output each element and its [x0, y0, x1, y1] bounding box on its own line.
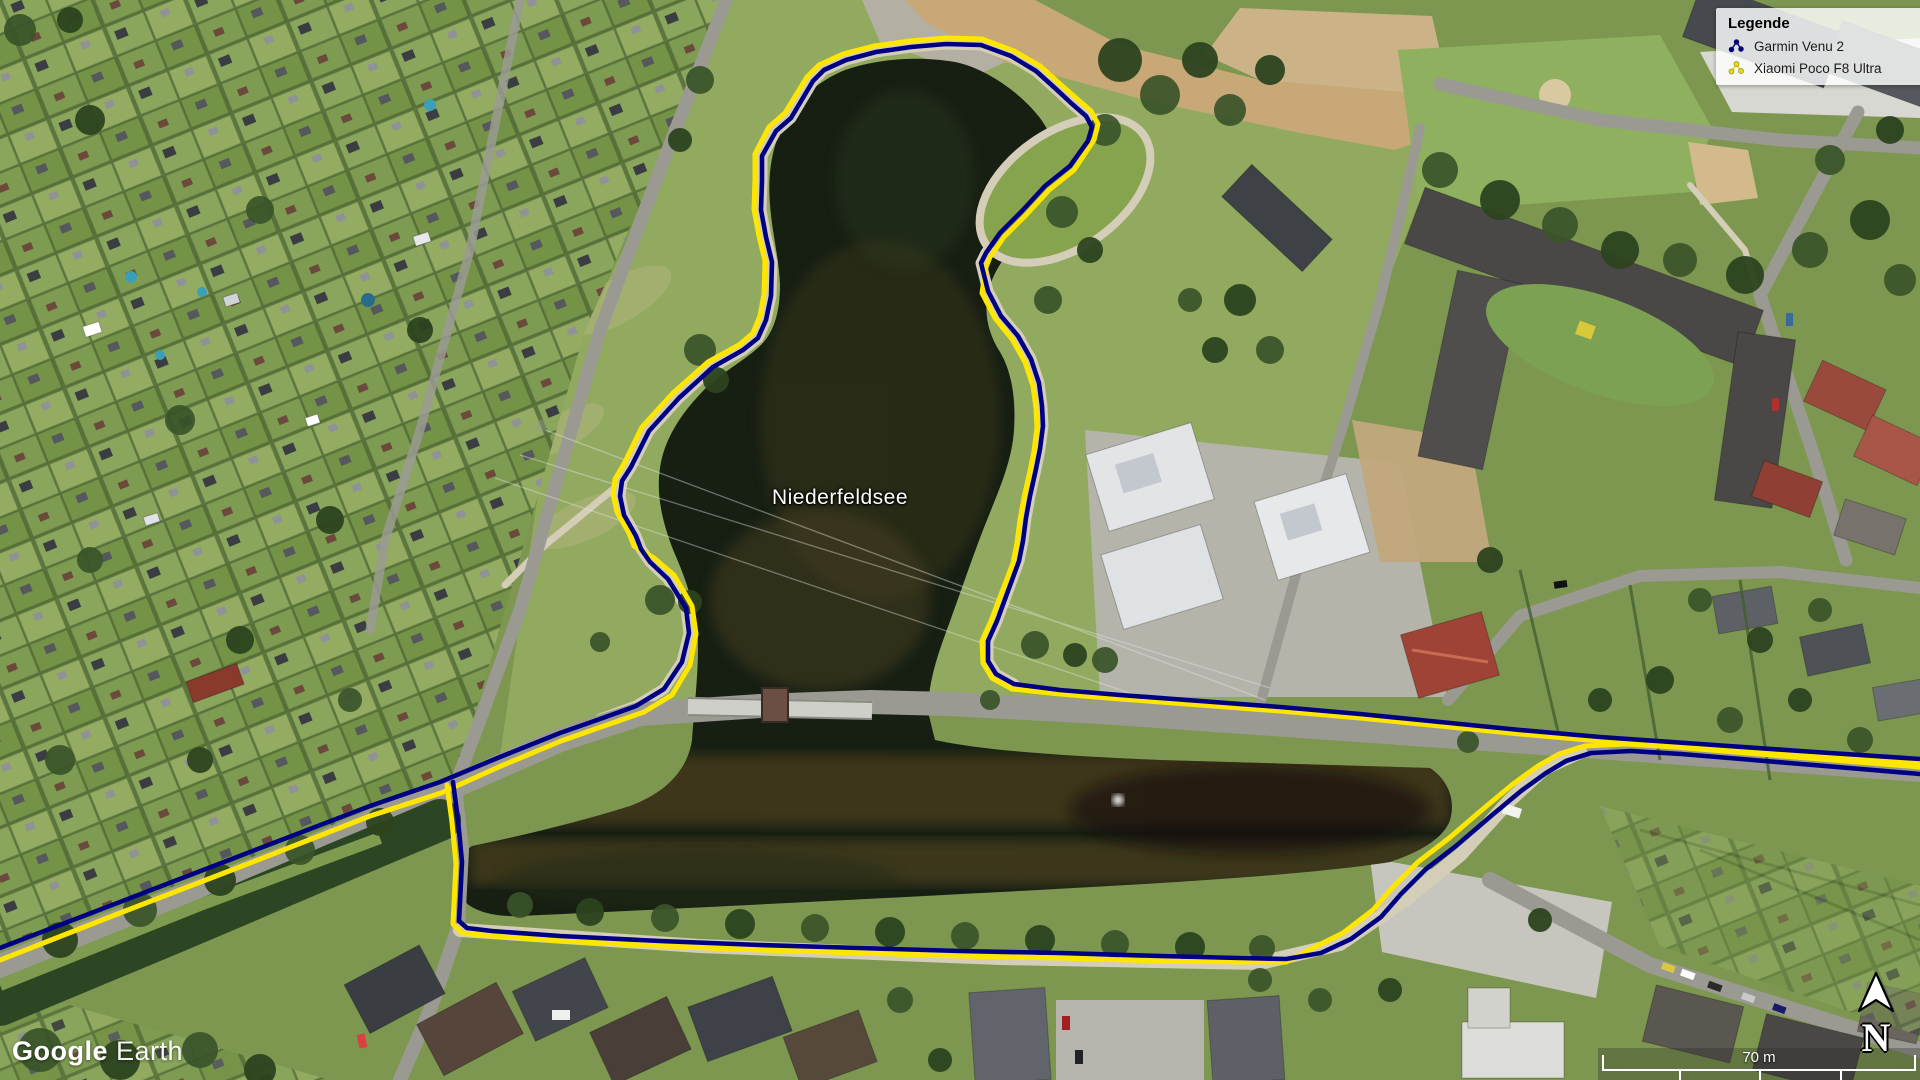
- bridge-tower: [762, 688, 788, 722]
- scale-tick: [1914, 1055, 1916, 1071]
- legend-panel: Legende Garmin Venu 2 Xiaomi Poco F8 Ult…: [1716, 8, 1920, 85]
- legend-item-garmin: Garmin Venu 2: [1728, 38, 1920, 55]
- fountain: [1113, 795, 1124, 806]
- legend-item-label: Garmin Venu 2: [1754, 39, 1844, 54]
- building-block-2: [1207, 996, 1285, 1080]
- north-arrow-icon: [1846, 970, 1906, 1014]
- legend-item-xiaomi: Xiaomi Poco F8 Ultra: [1728, 60, 1920, 77]
- building-block-1: [969, 987, 1051, 1080]
- watermark-product: Earth: [116, 1036, 183, 1066]
- map-canvas[interactable]: [0, 0, 1920, 1080]
- scale-tick: [1679, 1071, 1681, 1080]
- scale-tick: [1602, 1055, 1604, 1071]
- google-earth-viewport: Niederfeldsee Legende Garmin Venu 2 Xiao…: [0, 0, 1920, 1080]
- north-letter: N: [1846, 1019, 1906, 1057]
- google-earth-watermark: GoogleEarth: [12, 1036, 183, 1067]
- track-dots-icon: [1728, 38, 1745, 55]
- legend-title: Legende: [1728, 15, 1920, 32]
- watermark-brand: Google: [12, 1036, 108, 1066]
- legend-item-label: Xiaomi Poco F8 Ultra: [1754, 61, 1882, 76]
- scale-tick: [1840, 1071, 1842, 1080]
- parking-between-blocks: [1056, 1000, 1204, 1080]
- track-dots-icon: [1728, 60, 1745, 77]
- scale-tick: [1759, 1071, 1761, 1080]
- place-label-niederfeldsee: Niederfeldsee: [760, 486, 920, 510]
- north-indicator: N: [1846, 970, 1906, 1056]
